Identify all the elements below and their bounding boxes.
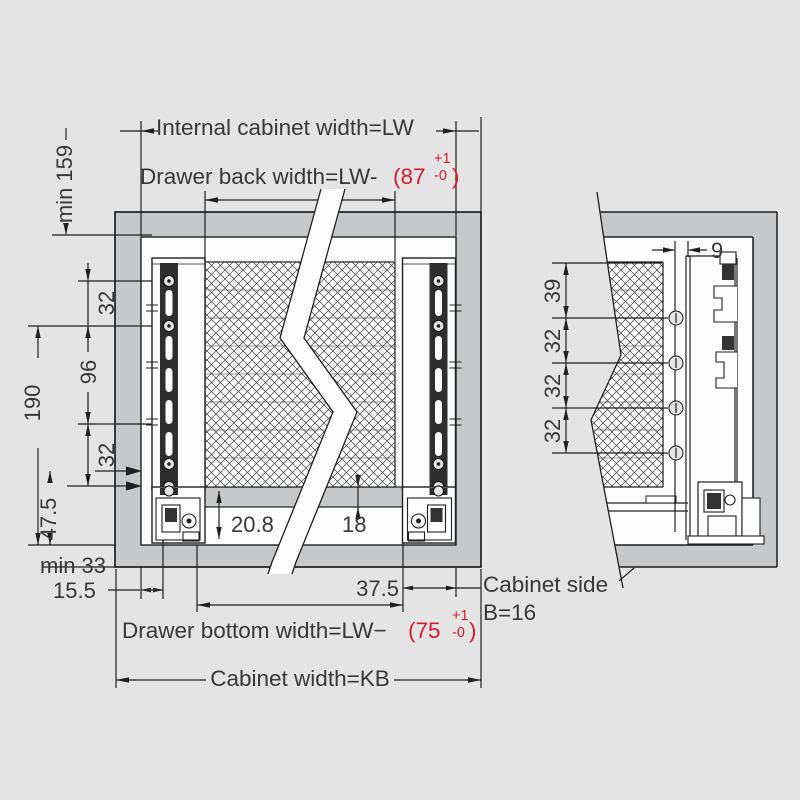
dim-15-5: 15.5 — [53, 578, 96, 603]
dim-9: 9 — [711, 238, 723, 263]
dim-18: 18 — [342, 512, 366, 537]
label-cabinet-width: Cabinet width=KB — [210, 666, 389, 691]
dim-32-top: 32 — [94, 291, 119, 315]
svg-text:): ) — [469, 618, 477, 643]
dim-96: 96 — [76, 360, 101, 384]
dim-37-5: 37.5 — [356, 576, 399, 601]
dim-min-159: min 159 — [52, 145, 77, 223]
technical-drawing-page: Internal cabinet width=LW Drawer back wi… — [0, 0, 800, 800]
label-internal-cabinet-width: Internal cabinet width=LW — [156, 115, 415, 140]
dim-190: 190 — [20, 385, 45, 422]
right-drawer-profile — [403, 258, 462, 543]
svg-text:-0: -0 — [452, 625, 465, 641]
dim-32-bottom: 32 — [94, 443, 119, 467]
dim-20-8: 20.8 — [231, 512, 274, 537]
dim-min-33: min 33 — [40, 553, 106, 578]
left-drawer-profile — [146, 258, 205, 543]
svg-text:Drawer back width=LW-: Drawer back width=LW- — [140, 164, 377, 189]
dim-47-5: 47.5 — [36, 498, 61, 541]
dim-39: 39 — [540, 279, 565, 303]
label-cabinet-side-thickness: B=16 — [483, 600, 536, 625]
dim-32-pitch-1: 32 — [540, 329, 565, 353]
svg-text:): ) — [452, 164, 460, 189]
svg-text:+1: +1 — [434, 151, 451, 167]
svg-text:(87: (87 — [393, 164, 426, 189]
dim-32-pitch-2: 32 — [540, 374, 565, 398]
svg-text:(75: (75 — [408, 618, 441, 643]
label-cabinet-side: Cabinet side — [483, 572, 608, 597]
svg-text:Drawer bottom width=LW−: Drawer bottom width=LW− — [122, 618, 387, 643]
drawer-installation-diagram: Internal cabinet width=LW Drawer back wi… — [0, 0, 800, 800]
svg-text:-0: -0 — [434, 168, 447, 184]
svg-text:+1: +1 — [452, 608, 469, 624]
dim-32-pitch-3: 32 — [540, 419, 565, 443]
